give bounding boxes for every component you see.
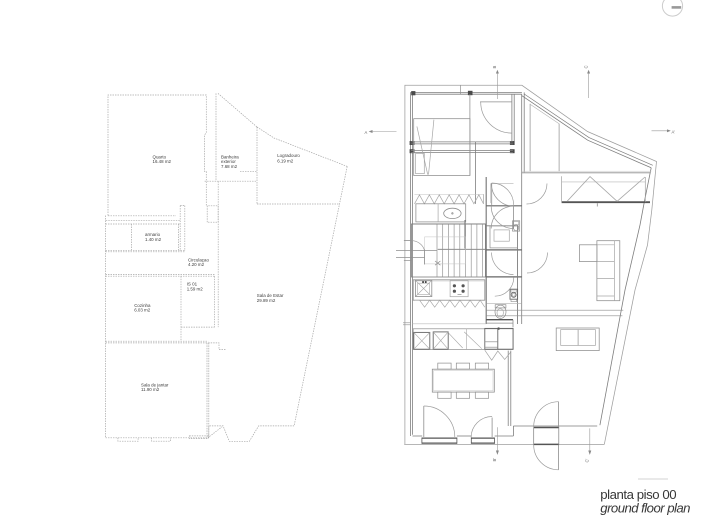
svg-text:1.40 m2: 1.40 m2 [145,237,162,242]
svg-text:B': B' [492,458,497,462]
svg-text:11.90 m2: 11.90 m2 [141,387,160,392]
svg-text:ground floor plan: ground floor plan [600,500,690,515]
svg-text:7.68 m2: 7.68 m2 [221,164,238,169]
svg-text:6.03 m2: 6.03 m2 [134,308,151,313]
svg-text:29.89 m2: 29.89 m2 [257,298,276,303]
svg-text:16.48 m2: 16.48 m2 [153,159,172,164]
svg-text:A: A [365,130,368,135]
svg-text:C': C' [584,458,589,462]
svg-text:A': A' [672,130,676,135]
svg-text:4.20 m2: 4.20 m2 [188,262,205,267]
svg-text:Logradouro: Logradouro [277,153,300,158]
svg-text:6.19 m2: 6.19 m2 [277,159,294,164]
svg-text:1.59 m2: 1.59 m2 [187,286,204,291]
svg-text:B: B [492,66,497,69]
svg-text:C: C [583,65,588,68]
